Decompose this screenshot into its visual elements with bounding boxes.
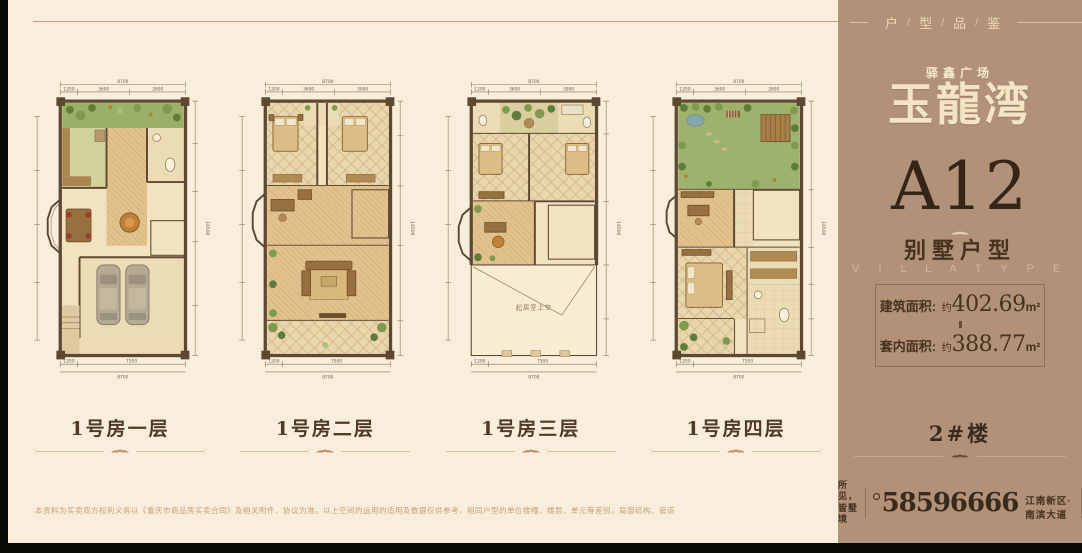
svg-text:1200: 1200: [63, 359, 74, 365]
caption-divider: [35, 447, 205, 455]
car: [97, 265, 120, 325]
floorplan-2-drawing: 8700 1200 3600 3900 1200 7500 8700: [227, 78, 423, 396]
inner-area-row: 套内面积: 约388.77m²: [876, 332, 1044, 357]
top-rule: [33, 21, 838, 22]
plan-label: 1号房二层: [276, 414, 375, 441]
contact-divider-left: [865, 488, 866, 518]
floorplan-3-drawing: 8700 1200 3600 3900 1200 7500 8700: [433, 78, 629, 396]
floorplan-3: 8700 1200 3600 3900 1200 7500 8700: [433, 78, 629, 455]
floorplan-1: 8700 1200 3600 3900 1200 7500 8700: [22, 78, 218, 455]
area-unit: m²: [1026, 340, 1041, 354]
svg-text:7500: 7500: [537, 359, 548, 365]
tv-cabinet: [320, 313, 347, 318]
legal-disclaimer: 本资料为买卖双方权利义务以《重庆市商品房买卖合同》及相关附件、协议为准。以上空间…: [35, 505, 675, 516]
svg-text:8700: 8700: [528, 375, 539, 381]
header-separator: /: [907, 17, 910, 29]
unit-code: A12: [838, 148, 1082, 225]
bay-window: [253, 194, 266, 248]
approx-prefix: 约: [942, 343, 952, 354]
svg-text:3900: 3900: [768, 86, 779, 92]
gross-area-row: 建筑面积: 约402.69m²: [876, 292, 1044, 317]
svg-text:16500: 16500: [204, 221, 210, 235]
svg-text:8700: 8700: [733, 375, 744, 381]
study: [678, 190, 734, 248]
svg-text:1200: 1200: [679, 86, 690, 92]
area-unit: m²: [1026, 300, 1041, 314]
svg-text:3900: 3900: [357, 86, 368, 92]
svg-text:3600: 3600: [714, 86, 725, 92]
caption-divider: [651, 447, 821, 455]
ornament-icon: [314, 447, 336, 455]
driveway: [80, 338, 186, 355]
gross-area-label: 建筑面积:: [880, 299, 936, 314]
pond: [687, 115, 704, 127]
svg-text:8700: 8700: [323, 79, 334, 85]
plan-label: 1号房四层: [686, 414, 785, 441]
svg-text:8700: 8700: [733, 79, 744, 85]
unit-type-cn: 别墅户型: [838, 233, 1082, 265]
area-info-box: 建筑面积: 约402.69m² 套内面积: 约388.77m²: [875, 284, 1045, 367]
armchair: [298, 190, 311, 200]
inner-area-value: 388.77: [952, 332, 1026, 357]
desk: [271, 199, 294, 211]
plan-label: 1号房一层: [70, 414, 169, 441]
phone-block: 58596666: [873, 490, 1019, 516]
gross-area-value: 402.69: [952, 292, 1026, 317]
floorplan-2: 8700 1200 3600 3900 1200 7500 8700: [227, 78, 423, 455]
svg-text:1200: 1200: [269, 359, 280, 365]
header-line-right: [1017, 22, 1082, 23]
svg-text:16500: 16500: [614, 221, 620, 235]
bookshelf: [681, 192, 714, 198]
svg-text:8700: 8700: [117, 79, 128, 85]
floorplan-1-drawing: 8700 1200 3600 3900 1200 7500 8700: [22, 78, 218, 396]
caption-divider: [240, 447, 410, 455]
header-separator: /: [975, 17, 978, 29]
svg-text:1200: 1200: [63, 86, 74, 92]
address: 江南新区·南滨大道: [1025, 485, 1074, 521]
poster: 8700 1200 3600 3900 1200 7500 8700: [0, 0, 1082, 553]
caption-divider: [446, 447, 616, 455]
svg-text:8700: 8700: [117, 375, 128, 381]
svg-text:8700: 8700: [323, 375, 334, 381]
bay-window: [458, 207, 471, 261]
dresser: [682, 250, 711, 256]
header-separator: /: [941, 17, 944, 29]
svg-text:3600: 3600: [303, 86, 314, 92]
header-line-left: [850, 22, 868, 23]
sofa: [484, 223, 505, 233]
area-divider: [959, 321, 962, 328]
floorplan-4: 8700 1200 3600 3900 1200 7500 8700: [638, 78, 834, 455]
brand-name: 玉龍湾: [838, 81, 1082, 128]
svg-text:1200: 1200: [474, 359, 485, 365]
unit-type-en: V I L L A T Y P E: [838, 263, 1082, 275]
void-label: 起居室上空: [516, 302, 552, 311]
approx-prefix: 约: [942, 303, 952, 314]
ornament-icon: [109, 447, 131, 455]
header-char: 鉴: [987, 13, 1000, 32]
svg-text:1200: 1200: [679, 359, 690, 365]
building-number: 2#楼: [838, 418, 1082, 448]
ornament-icon: [949, 452, 971, 460]
info-panel: 户 / 型 / 品 / 鉴 驿鑫广场 玉龍湾 A12 别墅户型 V I L L …: [838, 0, 1082, 543]
svg-text:7500: 7500: [126, 359, 137, 365]
recreation-room: [473, 201, 535, 265]
svg-text:3600: 3600: [98, 86, 109, 92]
desk: [688, 205, 709, 216]
contact-row: 所见， 皆墅境 58596666 江南新区·南滨大道: [838, 480, 1082, 525]
panel-header: 户 / 型 / 品 / 鉴: [850, 13, 1082, 32]
slogan-line1: 所见，: [838, 480, 858, 503]
svg-text:1200: 1200: [474, 86, 485, 92]
svg-text:7500: 7500: [331, 359, 342, 365]
svg-text:1200: 1200: [269, 86, 280, 92]
floorplans-row: 8700 1200 3600 3900 1200 7500 8700: [22, 78, 834, 455]
floorplan-canvas: 8700 1200 3600 3900 1200 7500 8700: [8, 0, 838, 543]
ornament-icon: [725, 447, 747, 455]
header-char: 户: [885, 13, 898, 32]
slogan-line2: 皆墅境: [838, 503, 858, 526]
ornament-icon: [520, 447, 542, 455]
brand-logo: 驿鑫广场 玉龍湾: [838, 64, 1082, 128]
header-char: 品: [953, 13, 966, 32]
svg-text:3900: 3900: [152, 86, 163, 92]
sofa: [306, 261, 352, 270]
entry-porch: [62, 305, 79, 355]
hall: [734, 190, 753, 248]
svg-text:7500: 7500: [742, 359, 753, 365]
svg-text:16500: 16500: [820, 221, 826, 235]
car: [126, 265, 149, 325]
phone-number: 58596666: [882, 488, 1019, 518]
svg-text:3600: 3600: [509, 86, 520, 92]
inner-area-label: 套内面积:: [880, 339, 936, 354]
svg-text:8700: 8700: [528, 79, 539, 85]
panel-divider: [854, 452, 1066, 460]
floorplan-4-drawing: 8700 1200 3600 3900 1200 7500 8700: [638, 78, 834, 396]
svg-text:16500: 16500: [409, 221, 415, 235]
slogan: 所见， 皆墅境: [838, 480, 858, 525]
phone-icon: [873, 493, 880, 500]
svg-text:3900: 3900: [563, 86, 574, 92]
bay-window: [48, 199, 61, 253]
plan-label: 1号房三层: [481, 414, 580, 441]
header-char: 型: [919, 13, 932, 32]
